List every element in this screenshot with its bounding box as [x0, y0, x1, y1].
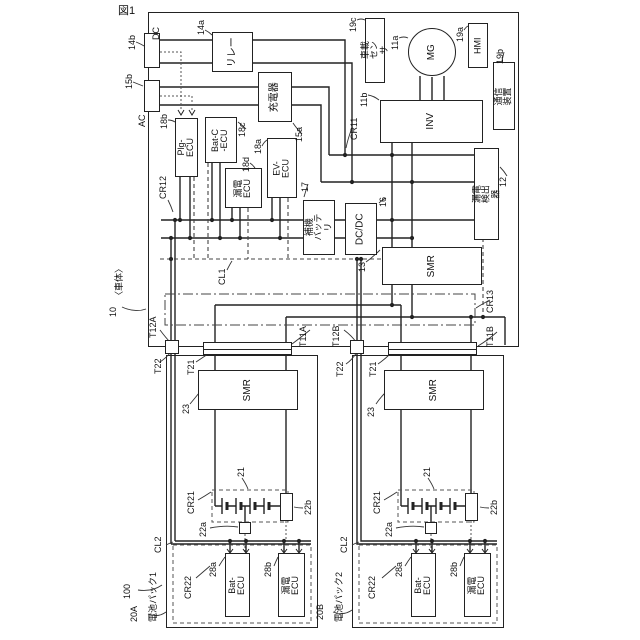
batc-ecu-box: Bat-C -ECU [205, 117, 237, 163]
batc-ecu-label: Bat-C -ECU [212, 128, 231, 151]
plg-ecu-label: Plg-ECU [177, 137, 196, 158]
ref-17: 17 [301, 182, 310, 192]
sensor-22b-pack1 [280, 493, 293, 521]
ref-12: 12 [499, 177, 508, 187]
leak-ecu-box-pack2: 漏電ECU [464, 553, 491, 617]
t22-connector-pack2 [350, 340, 364, 354]
leak-ecu-label-pack2: 漏電ECU [468, 573, 487, 598]
ref-19a: 19a [456, 27, 465, 42]
service-plug-22a-pack2 [425, 522, 437, 534]
ref-cl2-pack1: CL2 [154, 536, 163, 553]
ref-22a-pack2: 22a [385, 522, 394, 537]
motor-label: MG [427, 44, 438, 60]
ref-13: 13 [358, 262, 367, 272]
ref-28a-pack2: 28a [395, 562, 404, 577]
ref-28b-pack2: 28b [450, 562, 459, 577]
service-plug-22a-pack1 [239, 522, 251, 534]
dcdc-label: DC/DC [356, 213, 367, 245]
ref-19c: 19c [349, 17, 358, 32]
ref-16: 16 [379, 197, 388, 207]
leak-ecu-label-pack1: 漏電ECU [282, 573, 301, 598]
motor-circle: MG [408, 28, 456, 76]
ref-cr13: CR13 [486, 290, 495, 313]
comm-device-box: 通信装置 [493, 62, 515, 130]
dc-inlet-label: DC [152, 27, 161, 40]
ref-t22-pack1: T22 [154, 358, 163, 374]
ref-t21-pack2: T21 [369, 361, 378, 377]
leak-ecu-box-pack1: 漏電ECU [278, 553, 305, 617]
ref-15b: 15b [125, 74, 134, 89]
ref-22b-pack2: 22b [490, 500, 499, 515]
inverter-label: INV [426, 113, 437, 130]
bat-ecu-label-pack1: Bat-ECU [228, 574, 247, 597]
ev-ecu-box: EV-ECU [267, 138, 297, 198]
ac-inlet-label: AC [138, 114, 147, 127]
ref-21-pack1: 21 [237, 467, 246, 477]
ref-10: 10 [109, 307, 118, 317]
ref-22b-pack1: 22b [304, 500, 313, 515]
sensor-22b-pack2 [465, 493, 478, 521]
ref-t12a: T12A [149, 316, 158, 338]
figure-caption: 図1 [118, 6, 135, 17]
hmi-box: HMI [468, 23, 488, 68]
relay-label: リレー [227, 37, 238, 67]
plg-ecu-box: Plg-ECU [175, 118, 198, 177]
smr23-box-pack2: SMR [384, 370, 484, 410]
ref-t22-pack2: T22 [336, 361, 345, 377]
inverter-box: INV [380, 100, 483, 143]
t21-connector-pack2 [388, 342, 477, 355]
relay-box: リレー [212, 32, 253, 72]
ref-100: 100 [123, 584, 132, 599]
ref-cr12: CR12 [159, 176, 168, 199]
smr13-label: SMR [427, 255, 438, 277]
ref-21-pack2: 21 [423, 467, 432, 477]
vehicle-body-label: 〈車体〉 [115, 264, 124, 300]
comm-device-label: 通信装置 [495, 86, 514, 106]
ac-inlet [144, 80, 160, 112]
ref-14a: 14a [197, 20, 206, 35]
cr13-enclosure [165, 294, 475, 325]
t22-connector-pack1 [165, 340, 179, 354]
leak-ecu-label: 漏電 ECU [234, 178, 253, 197]
aux-battery-label: 補機 バッテリ [305, 213, 333, 243]
ref-28b-pack1: 28b [264, 562, 273, 577]
wiring-layer [0, 0, 640, 640]
ref-cr21-pack1: CR21 [187, 491, 196, 514]
patent-figure: リレー 充電器 Plg-ECU Bat-C -ECU 漏電 ECU EV-ECU… [0, 0, 640, 640]
ref-t11b: T11B [486, 326, 495, 347]
leak-detector-label: 漏電検出器 [472, 183, 500, 206]
ref-23-pack1: 23 [182, 404, 191, 414]
ref-t21-pack1: T21 [187, 359, 196, 375]
smr13-box: SMR [382, 247, 482, 285]
ref-cl1: CL1 [218, 268, 227, 285]
smr23-label-pack1: SMR [243, 379, 254, 401]
ref-22a-pack1: 22a [199, 522, 208, 537]
ref-23-pack2: 23 [367, 407, 376, 417]
dcdc-box: DC/DC [345, 203, 377, 255]
hmi-label: HMI [473, 37, 482, 54]
bat-ecu-box-pack2: Bat-ECU [411, 553, 436, 617]
ref-cr11: CR11 [350, 118, 359, 140]
ref-cr22-pack2: CR22 [368, 576, 377, 599]
ref-11a: 11a [391, 36, 400, 50]
ref-14b: 14b [128, 35, 137, 50]
ref-t12b: T12B [332, 325, 341, 347]
bat-ecu-label-pack2: Bat-ECU [414, 574, 433, 597]
pack1-name: 電池パック1 [149, 572, 158, 622]
ref-18c: 18c [238, 122, 247, 137]
charger-box: 充電器 [258, 72, 292, 122]
aux-battery-box: 補機 バッテリ [303, 200, 335, 255]
onboard-sensor-label: 車載センサ [361, 42, 389, 60]
charger-label: 充電器 [270, 82, 281, 112]
ev-ecu-label: EV-ECU [273, 154, 292, 182]
ref-19b: 19b [496, 49, 505, 64]
leak-ecu-box: 漏電 ECU [225, 168, 262, 208]
ref-18b: 18b [160, 114, 169, 129]
bat-ecu-box-pack1: Bat-ECU [225, 553, 250, 617]
onboard-sensor-box: 車載センサ [365, 18, 385, 83]
ref-t11a: T11A [299, 326, 308, 347]
ref-18d: 18d [242, 157, 251, 172]
smr23-box-pack1: SMR [198, 370, 298, 410]
ref-20b: 20B [316, 604, 325, 620]
smr23-label-pack2: SMR [429, 379, 440, 401]
ref-15a: 15a [295, 127, 304, 142]
ref-11b: 11b [360, 93, 369, 107]
t21-connector-pack1 [203, 342, 292, 355]
ref-28a-pack1: 28a [209, 562, 218, 577]
ref-18a: 18a [254, 139, 263, 154]
pack2-name: 電池パック2 [335, 572, 344, 622]
ref-20a: 20A [130, 606, 139, 622]
ref-cl2-pack2: CL2 [340, 536, 349, 553]
leak-detector-box: 漏電検出器 [474, 148, 499, 240]
ref-cr22-pack1: CR22 [184, 576, 193, 599]
ref-cr21-pack2: CR21 [373, 491, 382, 514]
